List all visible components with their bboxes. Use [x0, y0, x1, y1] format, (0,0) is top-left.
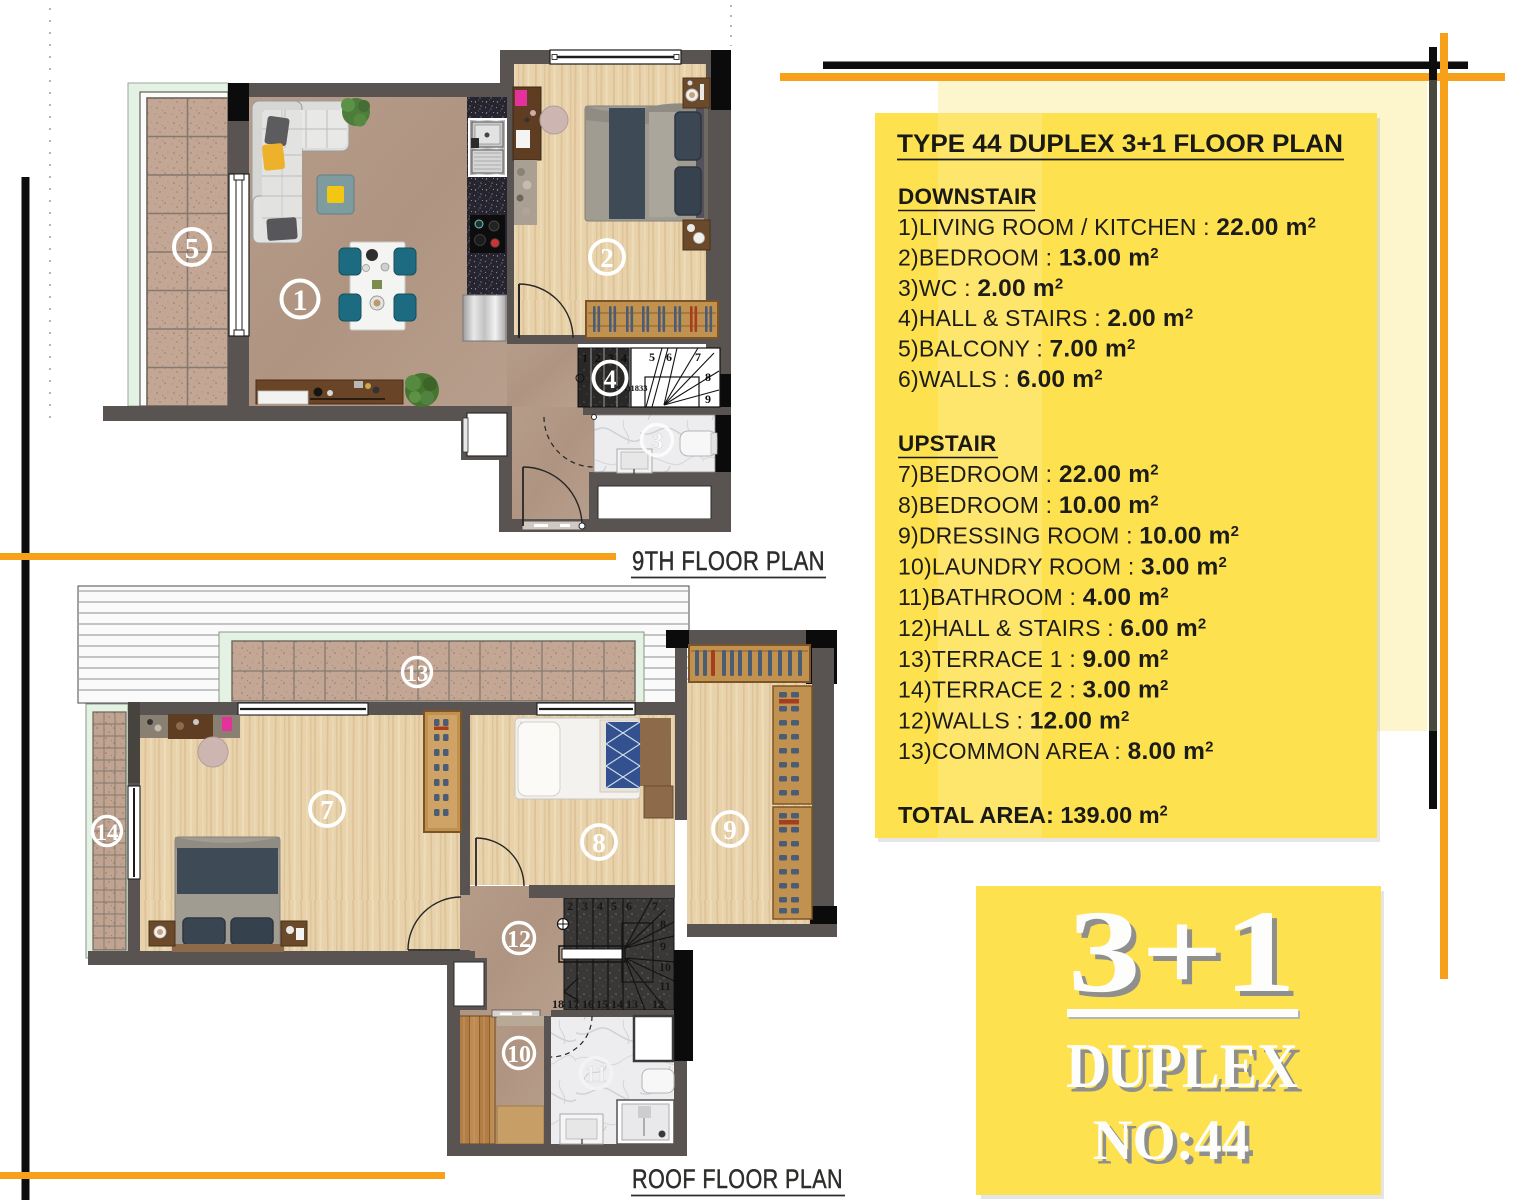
- svg-text:17: 17: [567, 997, 579, 1011]
- svg-text:4)HALL & STAIRS : 2.00 m2: 4)HALL & STAIRS : 2.00 m2: [898, 305, 1193, 332]
- svg-text:12)WALLS : 12.00 m2: 12)WALLS : 12.00 m2: [898, 707, 1130, 734]
- svg-text:4: 4: [597, 899, 603, 913]
- svg-text:7: 7: [320, 795, 334, 825]
- svg-text:12)HALL & STAIRS : 6.00 m2: 12)HALL & STAIRS : 6.00 m2: [898, 615, 1206, 642]
- svg-text:UPSTAIR: UPSTAIR: [898, 431, 997, 456]
- svg-text:4: 4: [604, 365, 617, 394]
- svg-text:14: 14: [611, 997, 623, 1011]
- svg-text:7)BEDROOM : 22.00 m2: 7)BEDROOM : 22.00 m2: [898, 461, 1159, 488]
- svg-text:9: 9: [723, 815, 737, 845]
- svg-text:3: 3: [651, 429, 663, 455]
- svg-text:5: 5: [649, 350, 655, 364]
- svg-text:9TH FLOOR PLAN: 9TH FLOOR PLAN: [632, 546, 825, 576]
- svg-text:12: 12: [507, 927, 531, 953]
- svg-text:7: 7: [695, 350, 701, 364]
- svg-text:1: 1: [582, 351, 588, 365]
- svg-text:8: 8: [705, 370, 711, 384]
- svg-text:2: 2: [600, 243, 614, 273]
- svg-text:DUPLEX: DUPLEX: [1066, 1031, 1298, 1101]
- svg-text:TOTAL AREA: 139.00 m2: TOTAL AREA: 139.00 m2: [898, 802, 1168, 828]
- svg-text:7: 7: [652, 899, 658, 913]
- svg-text:DOWNSTAIR: DOWNSTAIR: [898, 184, 1037, 209]
- svg-text:NO:44: NO:44: [1093, 1109, 1250, 1172]
- svg-text:10: 10: [659, 960, 671, 974]
- svg-text:13: 13: [406, 661, 429, 686]
- svg-text:5: 5: [185, 233, 200, 265]
- svg-text:12: 12: [652, 997, 664, 1011]
- svg-text:9)DRESSING ROOM : 10.00 m2: 9)DRESSING ROOM : 10.00 m2: [898, 523, 1239, 550]
- svg-text:6)WALLS : 6.00 m2: 6)WALLS : 6.00 m2: [898, 366, 1103, 393]
- svg-text:13: 13: [626, 997, 638, 1011]
- svg-text:9: 9: [660, 939, 666, 953]
- svg-text:8: 8: [592, 828, 606, 858]
- svg-text:8: 8: [660, 917, 666, 931]
- svg-text:6: 6: [626, 899, 632, 913]
- svg-text:TYPE 44 DUPLEX 3+1 FLOOR PLAN: TYPE 44 DUPLEX 3+1 FLOOR PLAN: [897, 130, 1343, 158]
- svg-text:6: 6: [666, 350, 672, 364]
- svg-text:3)WC : 2.00 m2: 3)WC : 2.00 m2: [898, 275, 1063, 302]
- svg-text:5: 5: [611, 899, 617, 913]
- svg-text:15: 15: [596, 997, 608, 1011]
- svg-text:2: 2: [567, 899, 573, 913]
- svg-text:10: 10: [507, 1042, 531, 1068]
- svg-text:8)BEDROOM : 10.00 m2: 8)BEDROOM : 10.00 m2: [898, 492, 1159, 519]
- svg-text:16: 16: [582, 997, 594, 1011]
- svg-text:1: 1: [293, 284, 308, 317]
- svg-text:3+1: 3+1: [1068, 886, 1296, 1017]
- svg-text:1)LIVING ROOM / KITCHEN : 22.0: 1)LIVING ROOM / KITCHEN : 22.00 m2: [898, 214, 1316, 241]
- svg-text:4: 4: [621, 351, 627, 365]
- svg-text:3: 3: [582, 899, 588, 913]
- svg-text:2)BEDROOM : 13.00 m2: 2)BEDROOM : 13.00 m2: [898, 244, 1159, 271]
- svg-text:11)BATHROOM : 4.00 m2: 11)BATHROOM : 4.00 m2: [898, 584, 1169, 611]
- svg-text:11: 11: [585, 1062, 608, 1088]
- svg-text:14: 14: [96, 820, 120, 845]
- svg-text:10)LAUNDRY ROOM : 3.00 m2: 10)LAUNDRY ROOM : 3.00 m2: [898, 553, 1227, 580]
- svg-text:ROOF FLOOR PLAN: ROOF FLOOR PLAN: [632, 1164, 843, 1194]
- svg-text:18: 18: [552, 997, 564, 1011]
- svg-text:13)TERRACE 1 : 9.00 m2: 13)TERRACE 1 : 9.00 m2: [898, 646, 1169, 673]
- svg-text:14)TERRACE 2 : 3.00 m2: 14)TERRACE 2 : 3.00 m2: [898, 677, 1169, 704]
- svg-text:13)COMMON AREA : 8.00 m2: 13)COMMON AREA : 8.00 m2: [898, 738, 1214, 765]
- svg-text:5)BALCONY : 7.00 m2: 5)BALCONY : 7.00 m2: [898, 336, 1136, 363]
- svg-text:11: 11: [659, 979, 670, 993]
- svg-text:9: 9: [705, 392, 711, 406]
